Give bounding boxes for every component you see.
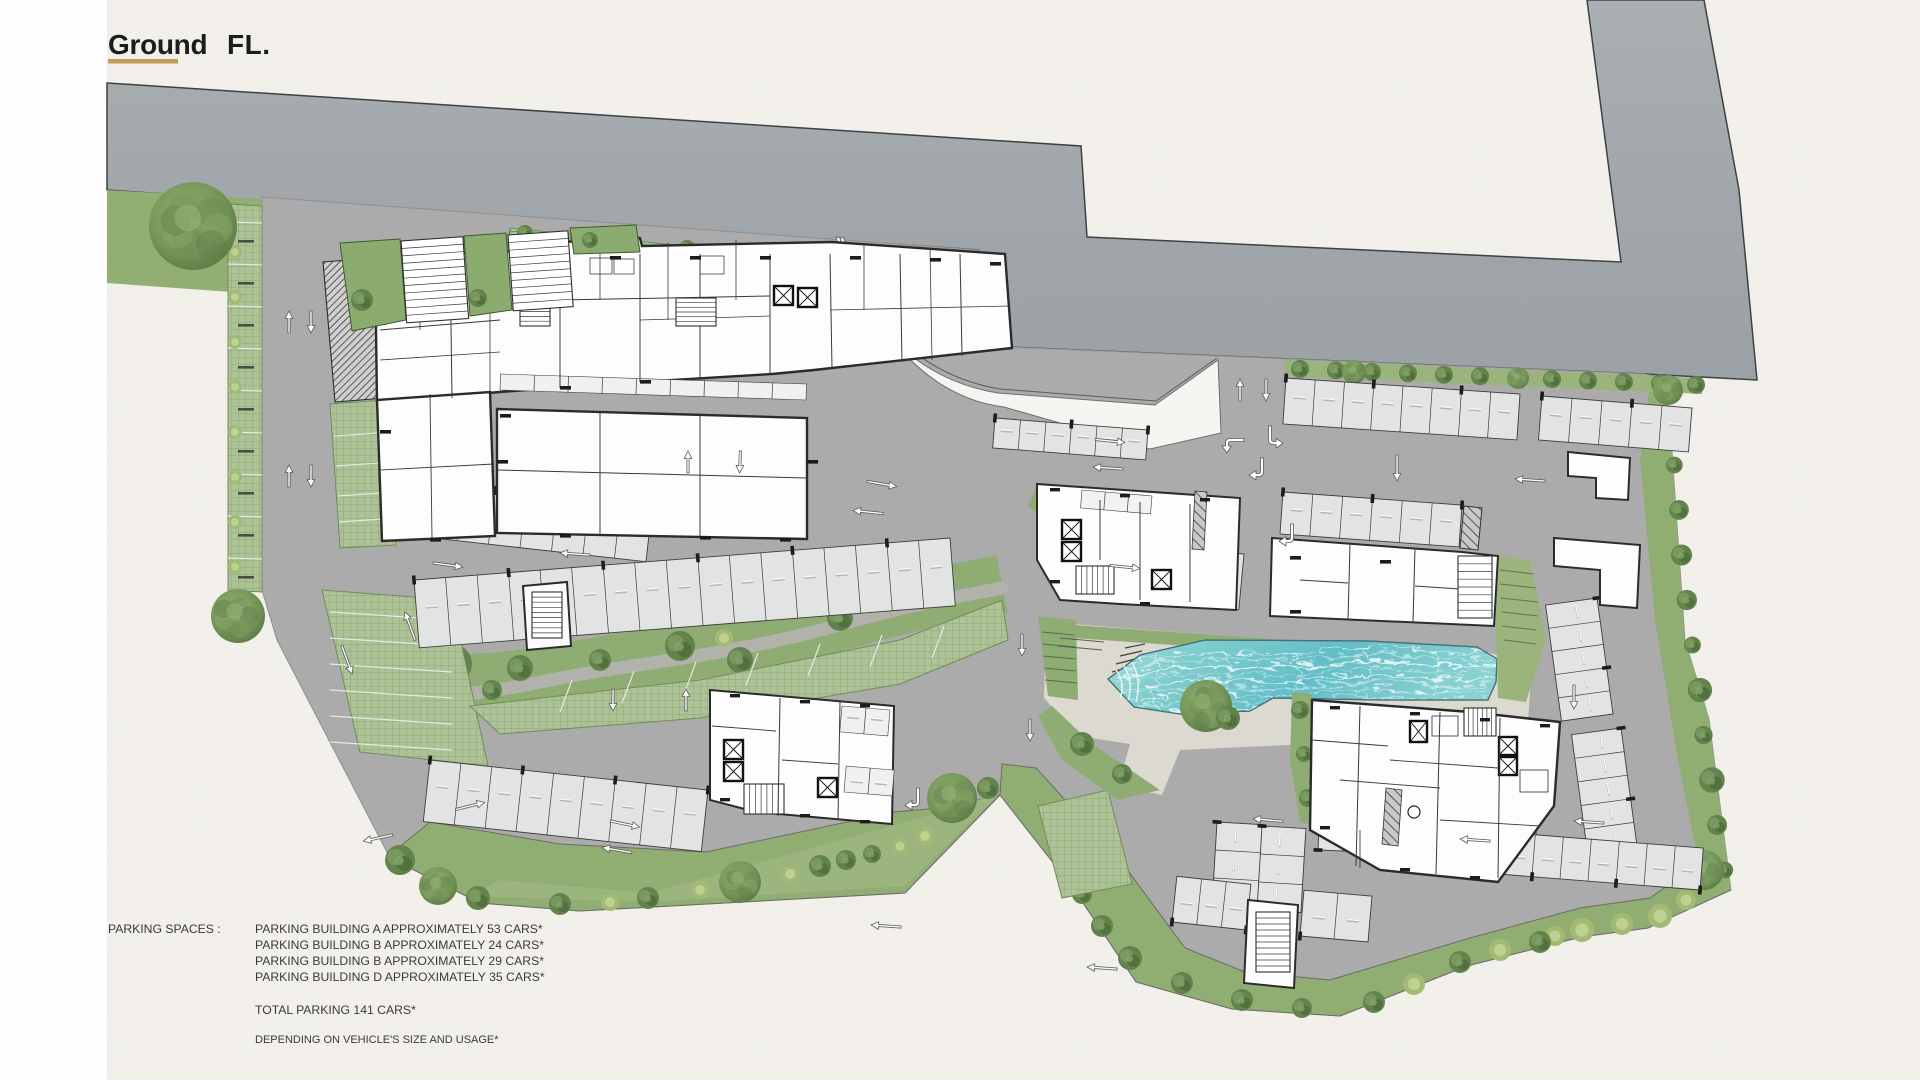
svg-text:FL.: FL. xyxy=(227,29,271,60)
svg-text:DEPENDING ON VEHICLE'S SIZE AN: DEPENDING ON VEHICLE'S SIZE AND USAGE* xyxy=(255,1034,499,1046)
svg-text:TOTAL PARKING 141 CARS*: TOTAL PARKING 141 CARS* xyxy=(255,1003,416,1017)
svg-text:PARKING SPACES :: PARKING SPACES : xyxy=(108,922,221,936)
svg-text:PARKING BUILDING A APPROXIMATE: PARKING BUILDING A APPROXIMATELY 53 CARS… xyxy=(255,922,543,936)
svg-text:PARKING BUILDING D APPROXIMATE: PARKING BUILDING D APPROXIMATELY 35 CARS… xyxy=(255,970,545,984)
svg-text:Ground: Ground xyxy=(108,29,207,60)
svg-text:PARKING BUILDING B APPROXIMATE: PARKING BUILDING B APPROXIMATELY 29 CARS… xyxy=(255,954,544,968)
svg-text:PARKING BUILDING B APPROXIMATE: PARKING BUILDING B APPROXIMATELY 24 CARS… xyxy=(255,938,544,952)
